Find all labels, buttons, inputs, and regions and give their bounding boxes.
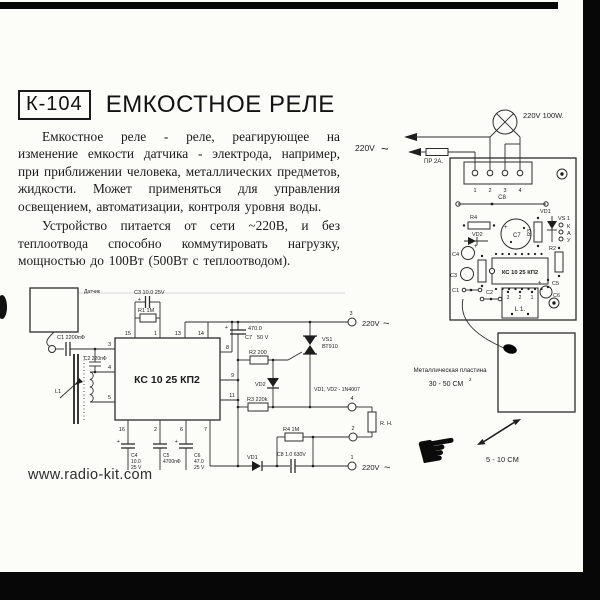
pcb-l1-pin2: 2	[519, 295, 522, 301]
sch-terminal-3	[348, 318, 356, 326]
pcb-c6-label: C6	[553, 293, 560, 299]
wiring-diagram: 220V ~ ПР 2А. 220V 100W.	[355, 110, 564, 170]
sch-c3-plus: +	[138, 297, 141, 303]
sch-pin-2: 2	[154, 427, 157, 433]
sch-pin-5: 5	[108, 395, 111, 401]
sch-l1-coil	[60, 354, 93, 424]
pcb-terminal-3: 3	[503, 188, 506, 194]
sch-ic-label: КС 10 25 КП2	[134, 374, 200, 386]
pcb-vs1-k: К	[567, 224, 571, 230]
sch-c7-val: 470.0	[248, 326, 262, 332]
sch-pin-4: 4	[108, 365, 111, 371]
pcb-l1-pin3: 3	[507, 295, 510, 301]
pcb-vs1-a: А	[567, 231, 571, 237]
sch-pin-14: 14	[198, 331, 204, 337]
sch-load-resistor	[368, 412, 376, 432]
sch-t2: 2	[351, 426, 354, 432]
sch-c7-volt: 50 V	[257, 335, 269, 341]
lamp-label: 220V 100W.	[523, 111, 564, 120]
sensor-label: Датчик	[84, 289, 101, 295]
sch-c4-volt: 25 V	[131, 465, 142, 471]
distance-arrow	[484, 423, 514, 442]
pcb-c7-plus: +	[504, 225, 508, 231]
sensor-plate	[30, 288, 78, 332]
lamp-icon	[493, 110, 517, 134]
sch-pin-13: 13	[175, 331, 181, 337]
pcb-c3-label: C3	[450, 273, 457, 279]
sch-pin-3: 3	[108, 342, 111, 348]
pcb-r3-label: R3	[527, 229, 533, 236]
pcb-c1-label: C1	[452, 288, 459, 294]
pcb-layout: 1 2 3 4 С8 R4 VD2 + C7	[450, 158, 576, 320]
plate-label-line2: 30 - 50 СМ	[429, 381, 464, 388]
scanned-leaflet: К-104 ЕМКОСТНОЕ РЕЛЕ Емкостное реле - ре…	[0, 0, 600, 600]
sch-vs1-type: ВТ910	[322, 344, 338, 350]
pcb-terminal-2: 2	[488, 188, 491, 194]
sch-c4-plus: +	[117, 439, 120, 445]
scan-artifact	[0, 295, 7, 319]
plate-label-sup: 2	[469, 377, 472, 382]
sch-pin-15: 15	[125, 331, 131, 337]
sch-pin-9: 9	[231, 373, 234, 379]
sch-terminal-4	[348, 403, 356, 411]
metal-plate-figure: Металлическая пластина 30 - 50 СМ 2 5 - …	[413, 299, 575, 464]
pcb-c4-label: C4	[452, 252, 459, 258]
sch-c3-label: С3 10.0 25V	[134, 290, 165, 296]
line-art: 220V ~ ПР 2А. 220V 100W.	[0, 0, 600, 600]
fuse-label: ПР 2А.	[424, 159, 443, 165]
pcb-c8-label: С8	[498, 195, 506, 201]
distance-label: 5 - 10 СМ	[486, 455, 519, 464]
sch-t1: 1	[350, 455, 353, 461]
sch-pin-7: 7	[204, 427, 207, 433]
sch-t3: 3	[349, 311, 352, 317]
plate-label-line1: Металлическая пластина	[413, 367, 487, 374]
sch-c7-label: C7	[245, 335, 252, 341]
sch-t4: 4	[350, 396, 353, 402]
sch-pin-16: 16	[119, 427, 125, 433]
sch-vd1-label: VD1	[247, 455, 258, 461]
mains-label: 220V	[355, 143, 375, 153]
pcb-c5-label: C5	[552, 281, 559, 287]
sch-r1-label: R1 1M	[138, 308, 155, 314]
sch-vs1-triac	[303, 322, 317, 407]
sch-c5-val: 4700пФ	[163, 459, 181, 465]
sensor-connector	[49, 346, 56, 353]
sch-tilde-top: ~	[383, 318, 389, 330]
sch-pin-6: 6	[180, 427, 183, 433]
mains-tilde: ~	[381, 141, 389, 156]
pcb-vs1-y: У	[567, 238, 571, 244]
pcb-terminal-4: 4	[518, 188, 521, 194]
schematic: Датчик С1 2200пФ 3 С2 220пФ	[30, 288, 393, 474]
sch-mains-bottom: 220V	[362, 463, 380, 472]
pcb-vs1-label: VS 1	[558, 216, 570, 222]
sch-diode-note: VD1, VD2 - 1N4007	[314, 387, 360, 393]
pcb-c7-label: C7	[513, 233, 521, 239]
sch-tilde-bottom: ~	[384, 462, 390, 474]
sch-mains-top: 220V	[362, 319, 380, 328]
pcb-c6-plus: +	[538, 280, 541, 286]
sch-vs1-label: VS1	[322, 337, 332, 343]
sch-vd2-label: VD2	[255, 382, 266, 388]
fuse-icon	[426, 149, 448, 156]
sch-c6-volt: 25 V	[194, 465, 205, 471]
solder-blob	[502, 343, 518, 356]
sch-c7-plus: +	[225, 325, 228, 331]
sch-c1-label: С1 2200пФ	[57, 335, 85, 341]
sch-terminal-2	[349, 433, 357, 441]
pcb-r4-label: R4	[470, 215, 477, 221]
arrow-left-bottom-icon	[408, 148, 421, 156]
sch-pin-1: 1	[154, 331, 157, 337]
pcb-c4-plus: +	[474, 244, 478, 250]
sch-r4-label: R4 1M	[283, 427, 300, 433]
pcb-terminal-block	[464, 162, 532, 184]
pcb-r2-label: R2	[549, 246, 556, 252]
pcb-l1-label: L 1.	[515, 306, 526, 313]
pcb-terminal-1: 1	[473, 188, 476, 194]
sch-terminal-1	[348, 462, 356, 470]
sch-load-label: R. Н.	[380, 421, 393, 427]
sch-c8-label: С8 1.0 630V	[277, 452, 306, 458]
sch-r3-label: R3 220k	[247, 397, 268, 403]
sch-l1-label: L1	[55, 389, 61, 395]
sch-c6-plus: +	[175, 439, 178, 445]
sch-pin-8: 8	[226, 345, 229, 351]
pcb-c2-label: C2	[486, 290, 493, 296]
pcb-vd1-label: VD1	[540, 209, 551, 215]
sch-pin-11: 11	[229, 393, 235, 399]
pcb-ic-label: КС 10 25 КП2	[502, 270, 538, 276]
sch-r2-label: R2 200	[249, 350, 267, 356]
pcb-l1-pin1: 1	[531, 295, 534, 301]
sch-c2-label: С2 220пФ	[84, 356, 107, 362]
